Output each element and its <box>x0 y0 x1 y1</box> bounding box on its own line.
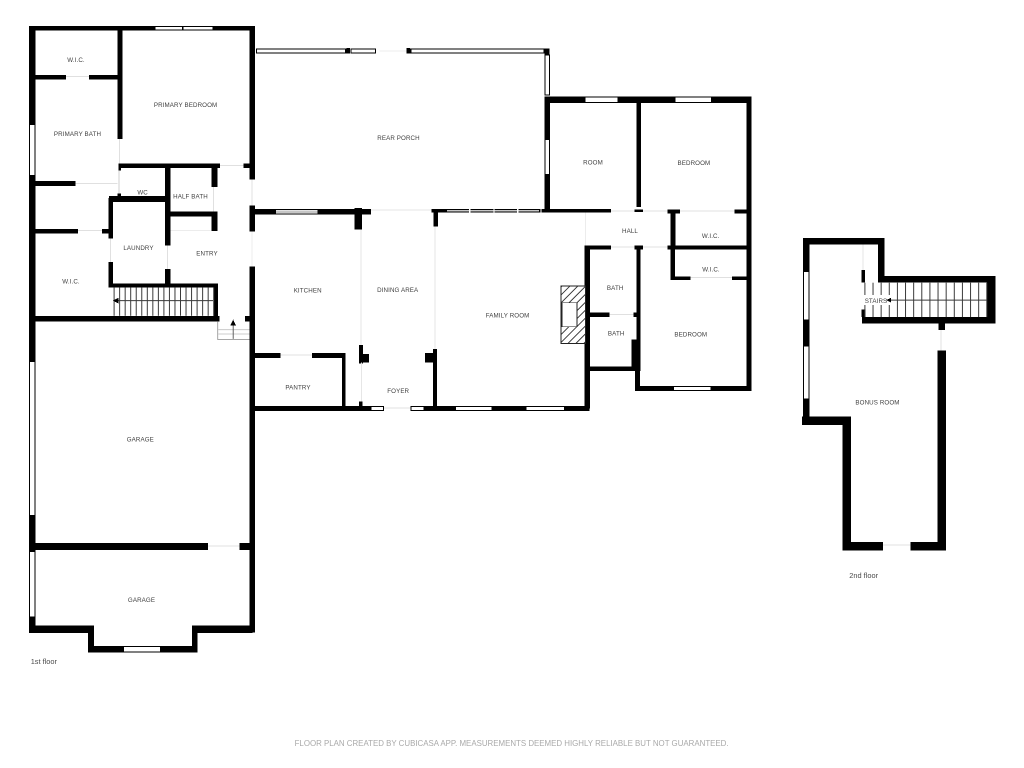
svg-text:PANTRY: PANTRY <box>285 385 310 392</box>
svg-text:FOYER: FOYER <box>387 388 409 395</box>
svg-text:W.I.C.: W.I.C. <box>67 57 85 64</box>
svg-text:ROOM: ROOM <box>583 160 603 167</box>
svg-text:HALF BATH: HALF BATH <box>173 194 208 201</box>
svg-text:DINING AREA: DINING AREA <box>377 287 419 294</box>
svg-text:PRIMARY BEDROOM: PRIMARY BEDROOM <box>154 102 217 109</box>
svg-text:LAUNDRY: LAUNDRY <box>123 245 153 252</box>
svg-text:KITCHEN: KITCHEN <box>294 288 322 295</box>
svg-text:GARAGE: GARAGE <box>127 436 154 443</box>
svg-text:W.I.C.: W.I.C. <box>62 279 80 286</box>
svg-text:WC: WC <box>137 190 148 197</box>
svg-text:FLOOR PLAN CREATED BY CUBICASA: FLOOR PLAN CREATED BY CUBICASA APP. MEAS… <box>295 739 729 748</box>
svg-text:PRIMARY BATH: PRIMARY BATH <box>54 131 101 138</box>
svg-text:REAR PORCH: REAR PORCH <box>377 135 419 142</box>
svg-text:GARAGE: GARAGE <box>128 597 155 604</box>
svg-text:HALL: HALL <box>622 228 638 235</box>
svg-text:W.I.C.: W.I.C. <box>702 266 720 273</box>
svg-text:BONUS ROOM: BONUS ROOM <box>855 399 899 406</box>
svg-text:STAIRS: STAIRS <box>865 298 888 305</box>
svg-text:FAMILY ROOM: FAMILY ROOM <box>486 312 530 319</box>
svg-text:2nd floor: 2nd floor <box>849 571 878 580</box>
svg-text:BEDROOM: BEDROOM <box>677 160 710 167</box>
svg-text:BEDROOM: BEDROOM <box>674 331 707 338</box>
svg-text:ENTRY: ENTRY <box>196 251 217 258</box>
svg-text:W.I.C.: W.I.C. <box>702 233 720 240</box>
svg-text:BATH: BATH <box>607 285 624 292</box>
svg-text:BATH: BATH <box>608 330 625 337</box>
svg-text:1st floor: 1st floor <box>31 657 58 666</box>
